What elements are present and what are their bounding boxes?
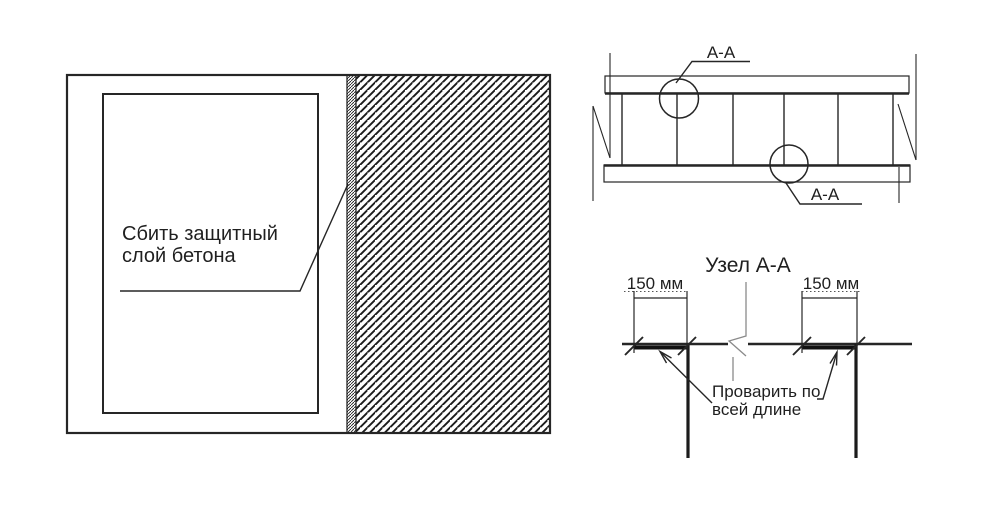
plan-bottom-flange	[604, 165, 910, 182]
note-text-line-2: слой бетона	[122, 245, 237, 267]
plan-top-flange	[605, 76, 909, 93]
demolition-area-hatch	[356, 75, 550, 433]
node-title: Узел А-А	[705, 254, 791, 277]
section-label-bottom: А-А	[811, 185, 840, 204]
section-circle-bottom	[770, 145, 808, 183]
plan-break-left	[593, 53, 610, 201]
dim-left-text: 150 мм	[627, 274, 683, 293]
weld-note-line-2: всей длине	[712, 400, 801, 419]
wall-elevation-figure: Сбить защитный слой бетона	[67, 75, 550, 433]
section-circle-top	[660, 79, 699, 118]
break-centerline	[729, 282, 746, 381]
note-text-line-1: Сбить защитный	[122, 223, 278, 245]
node-detail-figure: Узел А-А 150 мм 15	[622, 254, 912, 458]
protective-layer-strip	[347, 75, 356, 433]
plan-stiffeners	[622, 94, 893, 165]
section-leader-top	[676, 62, 750, 84]
drawing-svg: Сбить защитный слой бетона	[0, 0, 1000, 505]
weld-note-line-1: Проварить по	[712, 382, 820, 401]
beam-plan-view-figure: А-А А-А	[593, 43, 916, 204]
weld-note-leader-left	[660, 352, 712, 404]
dim-right-text: 150 мм	[803, 274, 859, 293]
section-label-top: А-А	[707, 43, 736, 62]
technical-drawing-sheet: Сбить защитный слой бетона	[0, 0, 1000, 505]
